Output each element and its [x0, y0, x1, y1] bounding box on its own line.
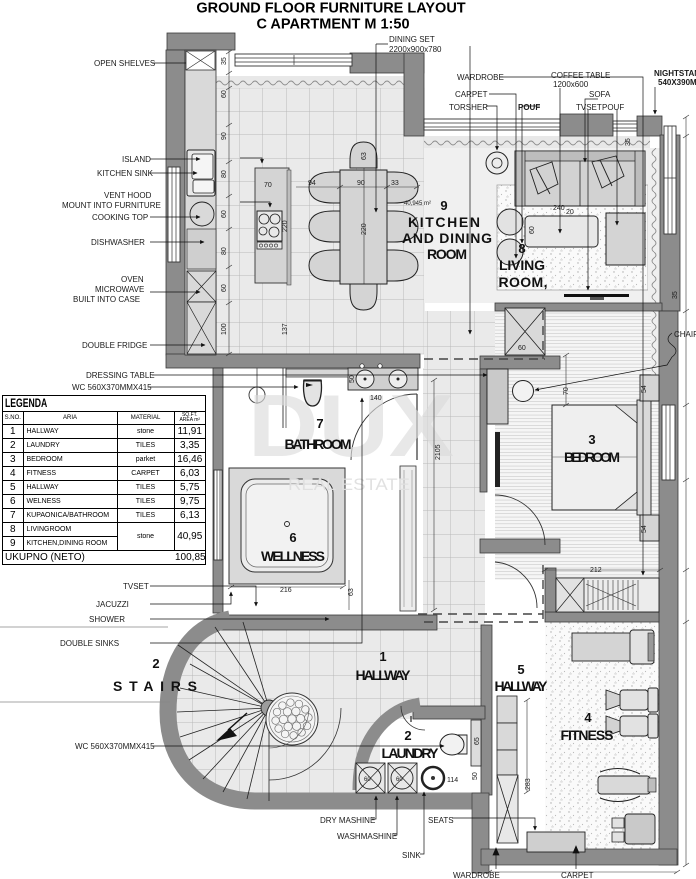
- svg-text:TVSET: TVSET: [576, 103, 602, 112]
- svg-text:35: 35: [625, 138, 632, 146]
- svg-text:40,945 m²: 40,945 m²: [404, 201, 431, 207]
- svg-text:80: 80: [221, 170, 228, 178]
- svg-text:JACUZZI: JACUZZI: [96, 600, 129, 609]
- svg-text:ISLAND: ISLAND: [122, 155, 151, 164]
- svg-text:140: 140: [370, 395, 382, 402]
- svg-text:9: 9: [440, 198, 447, 213]
- svg-text:1200x600: 1200x600: [553, 80, 589, 89]
- svg-text:50: 50: [349, 375, 356, 383]
- svg-text:CHAIR: CHAIR: [674, 330, 696, 339]
- svg-text:MICROWAVE: MICROWAVE: [95, 285, 144, 294]
- svg-text:220: 220: [361, 223, 368, 235]
- svg-text:540X390M: 540X390M: [658, 78, 696, 87]
- svg-text:LIVING: LIVING: [499, 257, 545, 273]
- svg-text:6: 6: [289, 530, 296, 545]
- svg-text:POUF: POUF: [518, 103, 540, 112]
- svg-text:100: 100: [221, 323, 228, 335]
- svg-text:70: 70: [563, 387, 570, 395]
- svg-text:54: 54: [641, 385, 648, 393]
- svg-text:NIGHTSTAND: NIGHTSTAND: [654, 69, 696, 78]
- svg-text:BEDROOM: BEDROOM: [564, 449, 620, 465]
- svg-text:1: 1: [379, 649, 386, 664]
- svg-text:ROOM: ROOM: [427, 246, 467, 262]
- svg-text:WELLNESS: WELLNESS: [261, 548, 325, 564]
- svg-text:WASHMASHINE: WASHMASHINE: [337, 832, 397, 841]
- svg-text:GROUND FLOOR FURNITURE LAYOUT: GROUND FLOOR FURNITURE LAYOUT: [196, 1, 465, 17]
- svg-text:MOUNT INTO FURNITURE: MOUNT INTO FURNITURE: [62, 201, 161, 210]
- svg-text:60: 60: [221, 90, 228, 98]
- svg-text:WARDROBE: WARDROBE: [457, 73, 504, 82]
- svg-text:60: 60: [221, 210, 228, 218]
- svg-text:REAL ESTATE: REAL ESTATE: [288, 475, 410, 494]
- svg-text:8: 8: [518, 241, 525, 256]
- svg-text:KITCHEN SINK: KITCHEN SINK: [97, 169, 154, 178]
- svg-text:2200x900x780: 2200x900x780: [389, 45, 442, 54]
- svg-text:70: 70: [264, 182, 272, 189]
- svg-text:60: 60: [529, 226, 536, 234]
- svg-text:2: 2: [152, 656, 159, 671]
- svg-text:AND DINING: AND DINING: [402, 230, 492, 246]
- svg-text:DOUBLE SINKS: DOUBLE SINKS: [60, 639, 119, 648]
- svg-text:63: 63: [348, 588, 355, 596]
- svg-text:HALLWAY: HALLWAY: [495, 678, 549, 694]
- svg-text:LAUNDRY: LAUNDRY: [382, 745, 440, 761]
- svg-text:DOUBLE FRIDGE: DOUBLE FRIDGE: [82, 341, 147, 350]
- svg-text:SINK: SINK: [402, 851, 421, 860]
- svg-text:DINING SET: DINING SET: [389, 35, 435, 44]
- svg-text:3: 3: [588, 432, 595, 447]
- svg-text:54: 54: [641, 525, 648, 533]
- svg-text:7: 7: [316, 416, 323, 431]
- svg-text:60: 60: [364, 777, 371, 783]
- svg-text:DRY MASHINE: DRY MASHINE: [320, 816, 375, 825]
- svg-text:63: 63: [361, 152, 368, 160]
- svg-text:CARPET: CARPET: [455, 90, 488, 99]
- svg-text:BUILT INTO CASE: BUILT INTO CASE: [73, 295, 140, 304]
- svg-text:94: 94: [308, 180, 316, 187]
- svg-text:KITCHEN: KITCHEN: [408, 214, 480, 230]
- svg-text:SEATS: SEATS: [428, 816, 454, 825]
- svg-text:DUX: DUX: [248, 376, 454, 475]
- svg-text:OPEN SHELVES: OPEN SHELVES: [94, 59, 155, 68]
- svg-text:5: 5: [517, 662, 524, 677]
- svg-text:DRESSING TABLE: DRESSING TABLE: [86, 371, 155, 380]
- svg-text:BATHROOM: BATHROOM: [285, 436, 352, 452]
- svg-text:OVEN: OVEN: [121, 275, 144, 284]
- svg-text:2: 2: [404, 728, 411, 743]
- svg-text:4: 4: [584, 710, 592, 725]
- svg-text:SOFA: SOFA: [589, 90, 611, 99]
- svg-text:212: 212: [590, 567, 602, 574]
- svg-text:HALLWAY: HALLWAY: [356, 667, 412, 683]
- svg-text:50: 50: [472, 772, 479, 780]
- svg-text:33: 33: [391, 180, 399, 187]
- svg-text:20: 20: [566, 209, 574, 216]
- svg-text:283: 283: [525, 778, 532, 790]
- svg-text:137: 137: [282, 323, 289, 335]
- svg-text:SHOWER: SHOWER: [89, 615, 125, 624]
- svg-text:VENT HOOD: VENT HOOD: [104, 191, 152, 200]
- svg-text:220: 220: [282, 220, 289, 232]
- svg-text:POUF: POUF: [602, 103, 624, 112]
- svg-text:60: 60: [396, 777, 403, 783]
- svg-text:FITNESS: FITNESS: [561, 727, 614, 743]
- svg-text:WARDROBE: WARDROBE: [453, 871, 500, 879]
- svg-text:ROOM,: ROOM,: [499, 274, 548, 290]
- svg-text:216: 216: [280, 587, 292, 594]
- svg-text:114: 114: [447, 777, 458, 784]
- svg-text:80: 80: [221, 247, 228, 255]
- svg-text:COFFEE TABLE: COFFEE TABLE: [551, 71, 610, 80]
- svg-text:COOKING TOP: COOKING TOP: [92, 213, 148, 222]
- svg-text:C APARTMENT M 1:50: C APARTMENT M 1:50: [256, 17, 409, 33]
- svg-text:90: 90: [357, 180, 365, 187]
- svg-text:240: 240: [553, 205, 565, 212]
- svg-text:35: 35: [221, 57, 228, 65]
- svg-text:65: 65: [474, 737, 481, 745]
- svg-text:WC 560X370MMX415: WC 560X370MMX415: [72, 383, 152, 392]
- svg-text:TORSHER: TORSHER: [449, 103, 488, 112]
- svg-text:CARPET: CARPET: [561, 871, 594, 879]
- svg-text:60: 60: [221, 284, 228, 292]
- svg-text:90: 90: [221, 132, 228, 140]
- svg-text:DISHWASHER: DISHWASHER: [91, 238, 145, 247]
- svg-text:2105: 2105: [435, 444, 442, 460]
- svg-text:60: 60: [518, 345, 526, 352]
- svg-text:WC 560X370MMX415: WC 560X370MMX415: [75, 742, 155, 751]
- svg-text:TVSET: TVSET: [123, 582, 149, 591]
- svg-text:35: 35: [672, 291, 679, 299]
